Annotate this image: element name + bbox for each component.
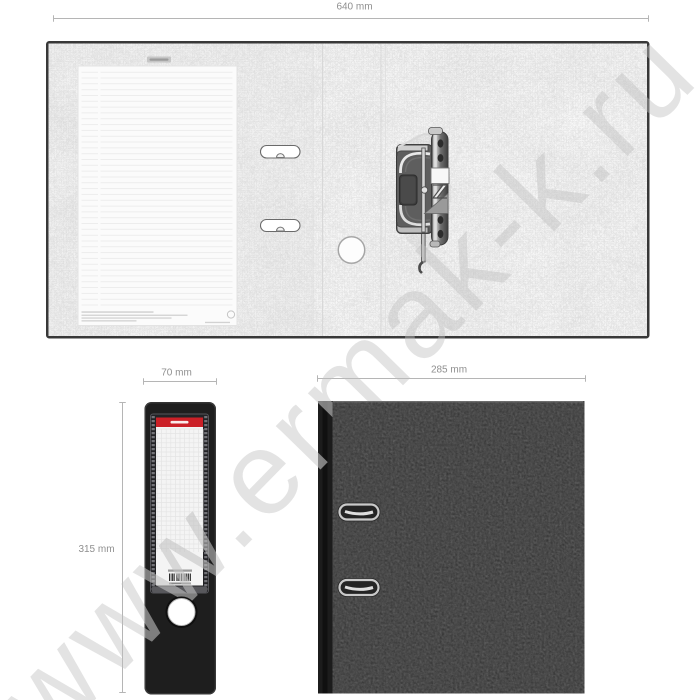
svg-text:70 mm: 70 mm <box>161 368 192 379</box>
svg-text:640 mm: 640 mm <box>336 2 372 13</box>
